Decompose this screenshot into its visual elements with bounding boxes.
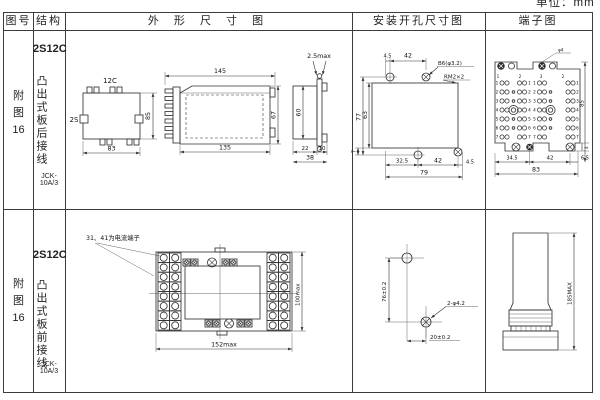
rear-view: 12C 2S 85 83 [70, 77, 157, 156]
svg-text:6: 6 [533, 126, 536, 131]
svg-text:3: 3 [528, 99, 531, 104]
dim-67: 67 [271, 111, 278, 119]
dim-4-5-top: 4.5 [384, 54, 392, 60]
svg-text:1: 1 [533, 81, 536, 86]
right-terminal-block [267, 253, 290, 330]
svg-text:2: 2 [496, 90, 499, 95]
svg-text:6: 6 [576, 126, 579, 131]
svg-text:4: 4 [528, 108, 531, 113]
svg-text:5: 5 [533, 117, 536, 122]
svg-text:2: 2 [533, 90, 536, 95]
callout-b6: B6(φ3.2) [438, 61, 462, 67]
svg-text:5: 5 [576, 117, 579, 122]
svg-text:3: 3 [496, 99, 499, 104]
mounting-drawing-row2: 76±0.2 2-φ4.2 20±0.2 [352, 210, 485, 391]
terminal-diagram-row1: φ4 1 2 3 2 1111 2222 3333 4444 5555 6666… [485, 31, 591, 209]
fig-number-row1: 附 图 16 [4, 88, 33, 139]
dim-63: 63 [362, 111, 369, 119]
side-view: 145 135 67 [165, 68, 281, 155]
dim-2-5max: 2.5max [307, 53, 331, 60]
callout-rm2: RM2×2 [444, 75, 464, 81]
dim-135: 135 [219, 145, 231, 152]
screw-mark: 2 [562, 74, 565, 79]
dim-7: 7 [352, 150, 358, 153]
svg-text:5: 5 [528, 117, 531, 122]
product-code-row1: JCK-10A/3 [33, 173, 65, 187]
fig-char: 16 [4, 122, 33, 139]
svg-text:6: 6 [528, 126, 531, 131]
fig-number-row2: 附 图 16 [4, 276, 33, 327]
screw-mark: 3 [540, 74, 543, 79]
screw-callout: φ4 [558, 48, 564, 53]
header-mounting: 安装开孔尺寸图 [352, 13, 485, 30]
svg-text:7: 7 [533, 135, 536, 140]
header-outline: 外 形 尺 寸 图 [65, 13, 352, 30]
header-fig-no: 图号 [4, 13, 33, 30]
svg-text:5: 5 [496, 117, 499, 122]
outline-drawing-row1: 12C 2S 85 83 145 135 [65, 31, 352, 209]
dim-85: 85 [580, 100, 586, 107]
current-terminal-note: 31、41为电流端子 [86, 233, 140, 242]
fig-char: 16 [4, 310, 33, 327]
fig-char: 附 [4, 88, 33, 105]
screw-mark: 2 [519, 74, 522, 79]
dim-185max: 185MAX [568, 282, 574, 305]
fig-char: 图 [4, 105, 33, 122]
unit-note: 单位：mm [536, 0, 595, 10]
dim-42-top: 42 [404, 53, 412, 60]
dim-32-5: 32.5 [396, 159, 409, 165]
spec-table: 图号 结构 外 形 尺 寸 图 安装开孔尺寸图 端子图 附 图 16 2S12C… [3, 12, 593, 393]
svg-text:7: 7 [576, 135, 579, 140]
dim-145: 145 [214, 68, 226, 75]
fig-char: 图 [4, 293, 33, 310]
dim-83: 83 [107, 146, 115, 153]
svg-text:4: 4 [496, 108, 499, 113]
dim-76: 76±0.2 [382, 282, 388, 302]
svg-text:2: 2 [576, 90, 579, 95]
dim-100max: 100max [296, 283, 302, 306]
fig-char: 附 [4, 276, 33, 293]
outline-drawing-row2: 31、41为电流端子 [65, 210, 352, 391]
terminal-grid: 1111 2222 3333 4444 5555 6666 7777 [496, 81, 580, 140]
dim-34-5: 34.5 [506, 156, 517, 162]
label-2s: 2S [70, 116, 79, 124]
dim-10: 10 [319, 146, 326, 152]
dim-60: 60 [296, 108, 303, 116]
mounting-drawing-row1: 4.5 42 B6(φ3.2) RM2×2 77 63 7 32.5 42 4.… [352, 31, 485, 209]
svg-text:6: 6 [496, 126, 499, 131]
screw-mark: 1 [497, 74, 500, 79]
dim-42: 42 [547, 156, 554, 162]
header-structure: 结构 [33, 13, 65, 30]
dim-83: 83 [532, 167, 540, 174]
svg-text:2: 2 [528, 90, 531, 95]
svg-text:7: 7 [496, 135, 499, 140]
label-12c: 12C [103, 77, 117, 85]
dim-4-5-bottom: 4.5 [466, 160, 474, 166]
svg-text:4: 4 [576, 108, 579, 113]
svg-text:4: 4 [533, 108, 536, 113]
wiring-type-row1: 凸出式板后接线 [33, 65, 65, 175]
svg-text:1: 1 [528, 81, 531, 86]
model-row2: 2S12C [33, 249, 65, 261]
end-view: 2.5max 60 22 10 38 [293, 53, 331, 162]
callout-2-phi-4-2: 2-φ4.2 [447, 301, 465, 307]
dim-152max: 152max [211, 342, 237, 349]
dim-42-bottom: 42 [434, 158, 442, 165]
header-terminal: 端子图 [485, 13, 591, 30]
coil-screws [183, 258, 252, 328]
left-terminal-block [158, 253, 181, 330]
svg-text:3: 3 [533, 99, 536, 104]
dim-38: 38 [306, 155, 314, 162]
model-row1: 2S12C [33, 43, 65, 55]
dim-85: 85 [145, 112, 152, 120]
terminal-diagram-row2: 185MAX [485, 210, 591, 391]
product-code-row2: JCK-10A/3 [33, 361, 65, 375]
dim-20: 20±0.2 [430, 335, 450, 341]
dim-22: 22 [302, 146, 309, 152]
svg-text:1: 1 [576, 81, 579, 86]
svg-text:7: 7 [528, 135, 531, 140]
dim-79: 79 [420, 170, 428, 177]
svg-text:1: 1 [496, 81, 499, 86]
